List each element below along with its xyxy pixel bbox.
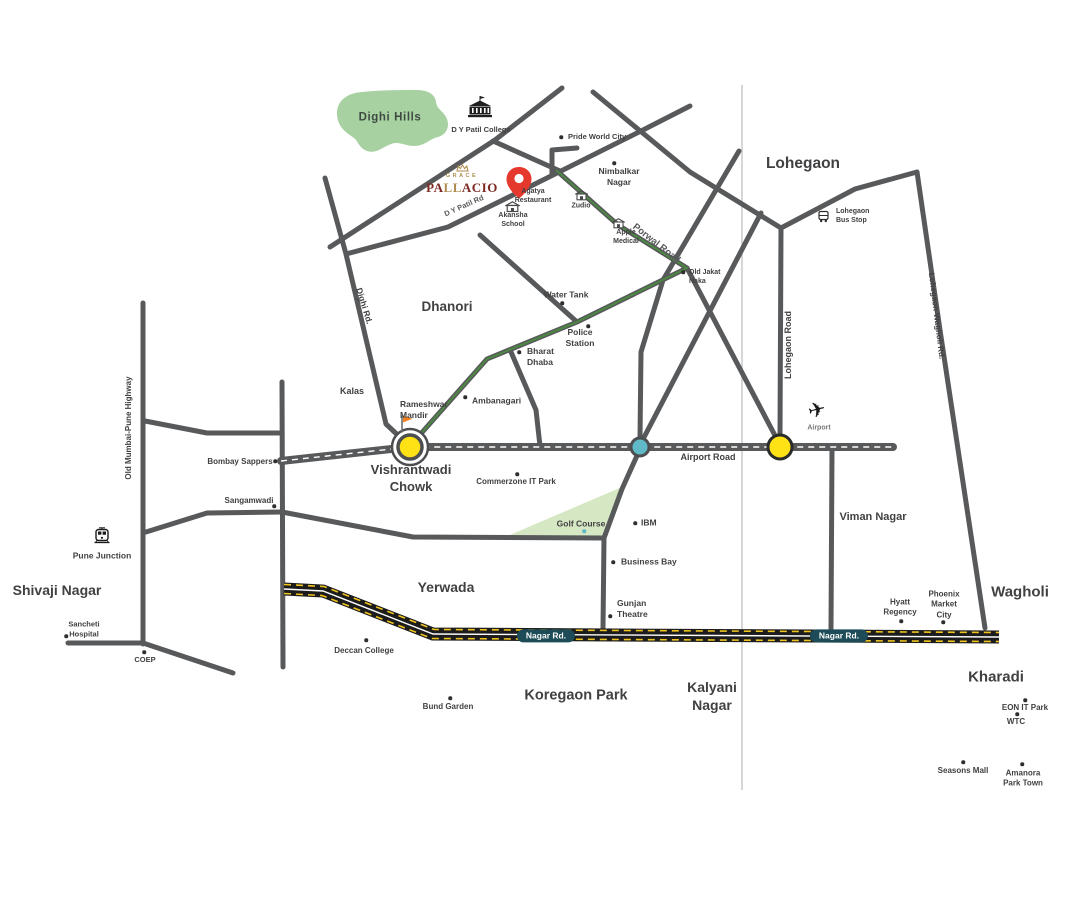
road-water-tank-path bbox=[480, 235, 577, 322]
airport-junction bbox=[768, 435, 792, 459]
road-lohegaon-wagholi-path bbox=[917, 172, 985, 628]
label-business-bay: Business Bay bbox=[621, 556, 677, 567]
college-icon bbox=[466, 94, 494, 120]
pride-world-city-dot bbox=[559, 135, 563, 139]
label-kharadi: Kharadi bbox=[968, 667, 1024, 687]
label-ambanagari: Ambanagari bbox=[472, 395, 521, 406]
seasons-mall-dot bbox=[961, 760, 965, 764]
label-dhanori: Dhanori bbox=[421, 298, 472, 316]
old-jakat-naka-dot bbox=[681, 270, 685, 274]
label-bharat-dhaba: Bharat Dhaba bbox=[527, 346, 554, 368]
label-old-jakat-naka: Old Jakat Naka bbox=[689, 268, 721, 286]
label-akansha-school: Akansha School bbox=[498, 211, 527, 229]
business-bay-dot bbox=[611, 560, 615, 564]
label-kalyani-nagar: Kalyani Nagar bbox=[687, 678, 737, 714]
label-amanora-park-town: Amanora Park Town bbox=[1003, 769, 1043, 790]
label-ibm: IBM bbox=[641, 517, 657, 528]
road-lohegaon-diag-path bbox=[593, 92, 781, 228]
label-lohegaon: Lohegaon bbox=[766, 154, 840, 174]
label-seasons-mall: Seasons Mall bbox=[938, 766, 989, 776]
label-water-tank: Water Tank bbox=[544, 289, 589, 300]
road-vertical-282-path bbox=[282, 382, 283, 667]
police-station-dot bbox=[586, 324, 590, 328]
road-viman-path bbox=[831, 449, 832, 629]
logo-grace-text: GRACE bbox=[407, 173, 517, 179]
eon-it-park-dot bbox=[1023, 698, 1027, 702]
label-wagholi: Wagholi bbox=[991, 582, 1049, 602]
golf-course-dot bbox=[582, 529, 586, 533]
hyatt-regency-dot bbox=[899, 619, 903, 623]
label-yerwada: Yerwada bbox=[418, 578, 475, 596]
teal-junction bbox=[631, 438, 649, 456]
label-dy-patil-college: D Y Patil College bbox=[451, 125, 510, 135]
bus-stop-icon bbox=[817, 210, 830, 223]
label-kalas: Kalas bbox=[340, 386, 364, 398]
label-sangamwadi: Sangamwadi bbox=[225, 496, 274, 506]
ibm-dot bbox=[633, 521, 637, 525]
coep-dot bbox=[142, 650, 146, 654]
pallacio-logo: GRACE PALLACIO bbox=[407, 164, 517, 196]
bharat-dhaba-dot bbox=[517, 350, 521, 354]
label-road-lohegaon: Lohegaon Road bbox=[783, 311, 795, 379]
road-sangamwadi-path bbox=[146, 512, 282, 532]
label-dighi-hills: Dighi Hills bbox=[359, 111, 422, 126]
label-viman-nagar: Viman Nagar bbox=[839, 510, 906, 524]
label-badge-nagar-rd-2: Nagar Rd. bbox=[810, 629, 868, 642]
label-pune-junction: Pune Junction bbox=[73, 550, 132, 561]
label-phoenix-market-city: Phoenix Market City bbox=[928, 589, 959, 620]
logo-pallacio-text: PALLACIO bbox=[407, 180, 517, 196]
label-shivaji-nagar: Shivaji Nagar bbox=[13, 581, 102, 599]
vishrantwadi-junction bbox=[398, 435, 422, 459]
label-golf-course: Golf Course bbox=[557, 518, 606, 529]
sancheti-hospital-dot bbox=[64, 634, 68, 638]
phoenix-market-city-dot bbox=[941, 620, 945, 624]
label-badge-nagar-rd-1: Nagar Rd. bbox=[517, 629, 575, 642]
deccan-college-dot bbox=[364, 638, 368, 642]
road-coep-diag-path bbox=[143, 643, 233, 673]
zudio-store-icon bbox=[575, 190, 588, 201]
label-nimbalkar-nagar: Nimbalkar Nagar bbox=[598, 166, 639, 188]
label-rameshwar-mandir: Rameshwar Mandir bbox=[400, 399, 448, 421]
label-sancheti-hospital: Sancheti Hospital bbox=[68, 619, 99, 639]
crown-icon bbox=[456, 164, 469, 172]
label-lohegaon-bus-stop: Lohegaon Bus Stop bbox=[836, 207, 869, 225]
label-eon-it-park: EON IT Park bbox=[1002, 703, 1048, 713]
label-bund-garden: Bund Garden bbox=[423, 702, 474, 712]
sangamwadi-dot bbox=[272, 504, 276, 508]
ambanagari-dot bbox=[463, 395, 467, 399]
road-yellow2-nw-path bbox=[687, 268, 780, 445]
location-map: ✈ GRACE PALLACIO Dighi HillsLohegaonDhan… bbox=[0, 0, 1070, 922]
label-vishrantwadi-chowk: Vishrantwadi Chowk bbox=[371, 462, 452, 496]
label-road-airport: Airport Road bbox=[681, 452, 736, 464]
commerzone-it-park-dot bbox=[515, 472, 519, 476]
road-airport-path bbox=[281, 447, 893, 461]
amanora-park-town-dot bbox=[1020, 762, 1024, 766]
label-airport: Airport bbox=[807, 423, 830, 432]
label-pride-world-city: Pride World City bbox=[568, 132, 626, 142]
road-gunjan-path bbox=[603, 538, 604, 628]
label-hyatt-regency: Hyatt Regency bbox=[883, 598, 916, 619]
road-branch-north-path bbox=[145, 421, 282, 433]
label-coep: COEP bbox=[134, 655, 155, 665]
label-agatya-restaurant: Agatya Restaurant bbox=[515, 187, 552, 205]
label-gunjan-theatre: Gunjan Theatre bbox=[617, 598, 648, 620]
bombay-sappers-dot bbox=[273, 459, 277, 463]
label-commerzone-it-park: Commerzone IT Park bbox=[476, 477, 556, 487]
label-zudio: Zudio bbox=[571, 201, 590, 210]
label-deccan-college: Deccan College bbox=[334, 646, 394, 656]
gunjan-theatre-dot bbox=[608, 614, 612, 618]
label-bombay-sappers: Bombay Sappers bbox=[207, 457, 272, 467]
label-road-old-mumbai: Old Mumbai-Pune Highway bbox=[124, 376, 134, 479]
road-lohegaon-rd-path bbox=[780, 228, 781, 434]
label-wtc: WTC bbox=[1007, 717, 1025, 727]
label-police-station: Police Station bbox=[566, 327, 595, 349]
map-roads-svg bbox=[0, 0, 1070, 922]
wtc-dot bbox=[1015, 712, 1019, 716]
train-icon bbox=[93, 525, 111, 545]
label-koregaon-park: Koregaon Park bbox=[524, 687, 627, 706]
bund-garden-dot bbox=[448, 696, 452, 700]
water-tank-dot bbox=[560, 301, 564, 305]
nimbalkar-nagar-dot bbox=[612, 161, 616, 165]
